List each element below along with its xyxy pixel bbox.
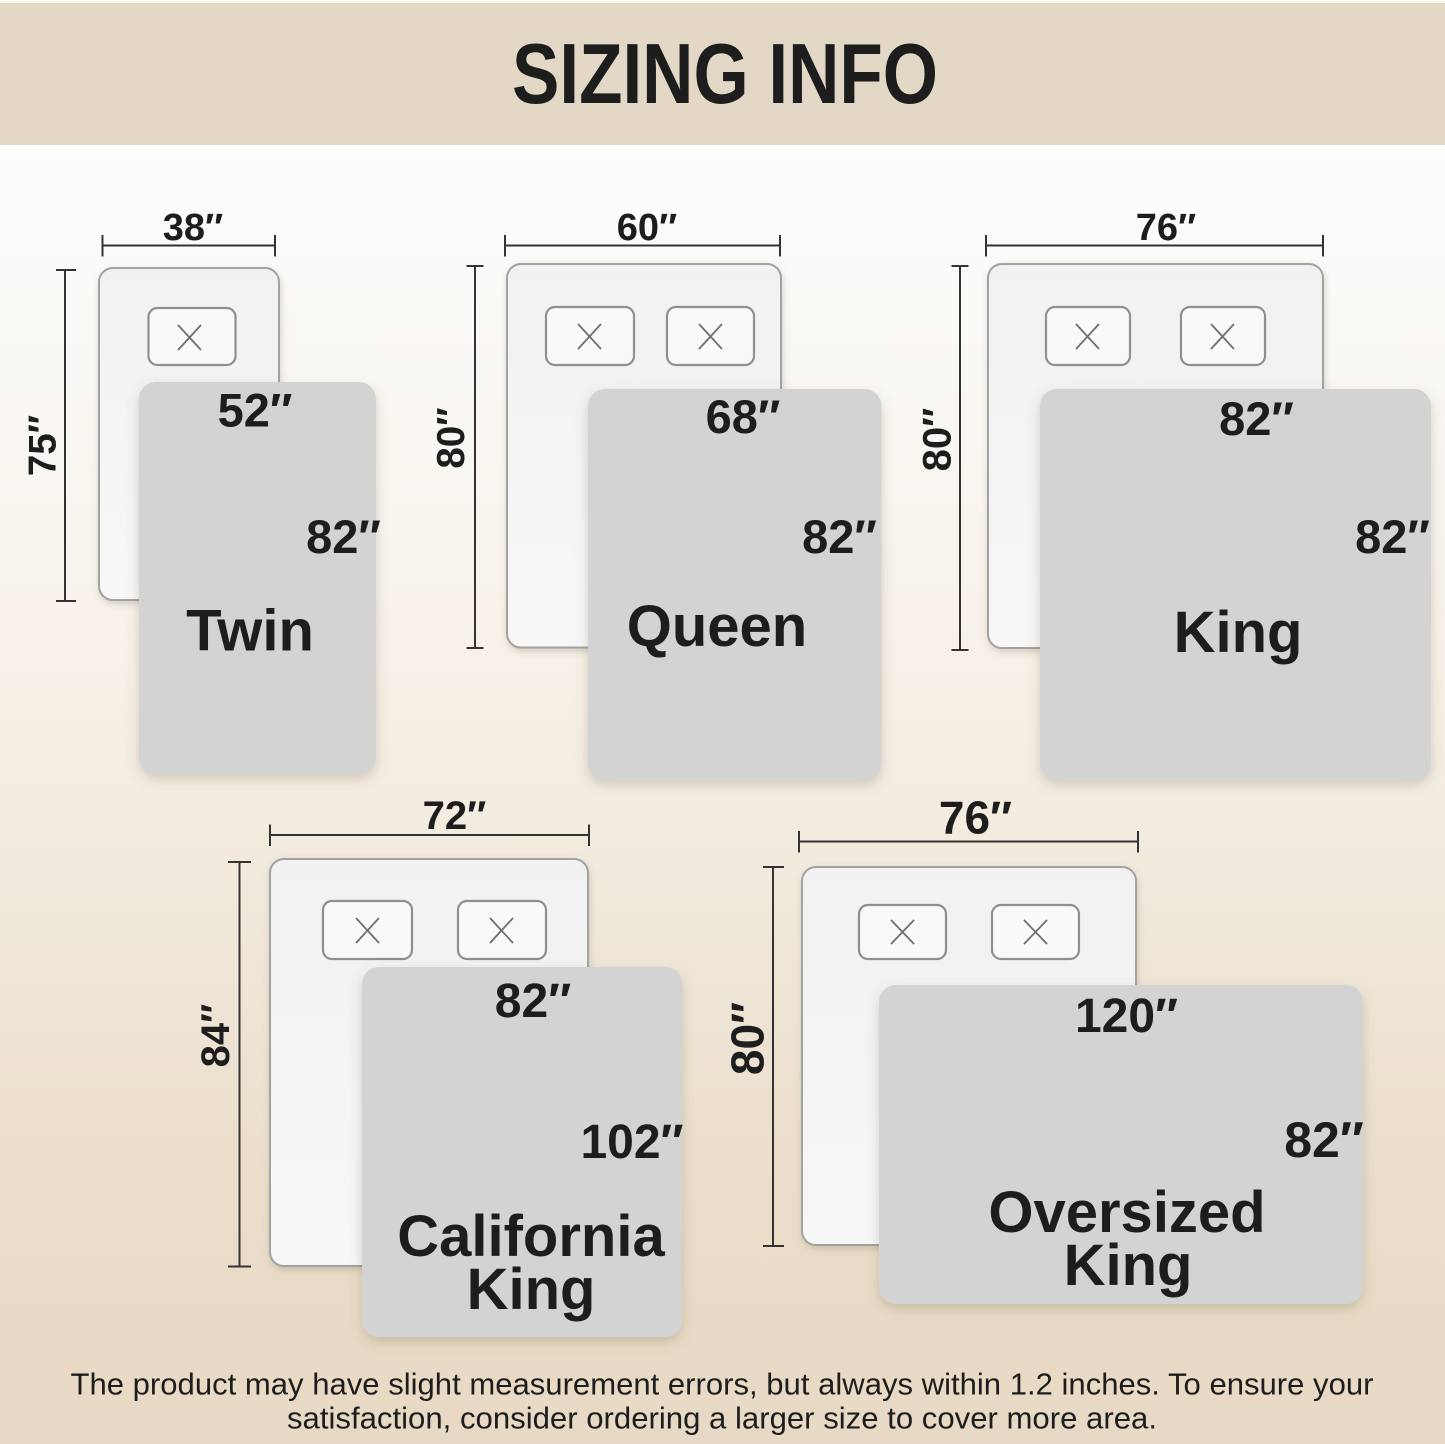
svg-text:The product may have slight me: The product may have slight measurement … — [71, 1368, 1374, 1402]
svg-text:80″: 80″ — [722, 1002, 774, 1075]
svg-text:King: King — [1064, 1233, 1193, 1298]
svg-text:82″: 82″ — [802, 510, 877, 563]
svg-text:38″: 38″ — [163, 207, 223, 249]
svg-text:82″: 82″ — [1284, 1112, 1364, 1168]
svg-text:102″: 102″ — [580, 1116, 683, 1169]
svg-text:68″: 68″ — [706, 390, 781, 443]
svg-text:80″: 80″ — [430, 407, 473, 468]
svg-text:84″: 84″ — [194, 1004, 238, 1068]
svg-text:satisfaction, consider orderin: satisfaction, consider ordering a larger… — [287, 1402, 1157, 1436]
svg-text:72″: 72″ — [423, 794, 487, 838]
svg-text:82″: 82″ — [1355, 510, 1430, 563]
svg-text:82″: 82″ — [1219, 392, 1294, 445]
svg-text:120″: 120″ — [1075, 990, 1178, 1043]
svg-text:82″: 82″ — [495, 975, 571, 1028]
svg-text:King: King — [467, 1257, 596, 1322]
svg-text:76″: 76″ — [939, 792, 1012, 844]
svg-text:75″: 75″ — [22, 415, 65, 476]
svg-text:80″: 80″ — [916, 408, 960, 472]
svg-text:Twin: Twin — [186, 599, 314, 664]
svg-text:Queen: Queen — [627, 594, 808, 659]
svg-text:King: King — [1174, 600, 1303, 665]
svg-text:SIZING INFO: SIZING INFO — [512, 27, 938, 122]
svg-text:76″: 76″ — [1136, 207, 1196, 249]
svg-text:52″: 52″ — [218, 384, 293, 437]
svg-text:60″: 60″ — [617, 207, 677, 249]
svg-text:82″: 82″ — [306, 510, 381, 563]
